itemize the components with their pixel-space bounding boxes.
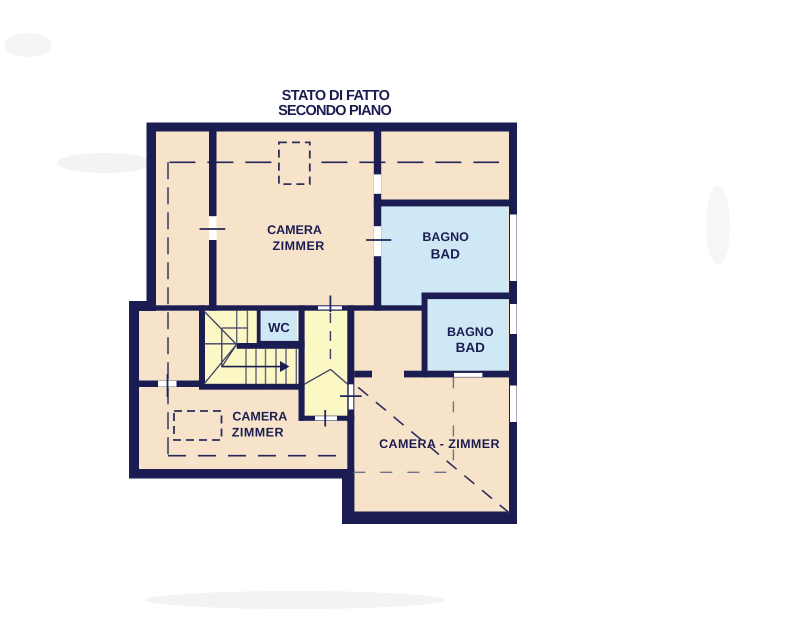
svg-text:BAGNO: BAGNO	[422, 230, 469, 244]
svg-text:CAMERA: CAMERA	[232, 410, 287, 424]
svg-text:BAD: BAD	[456, 340, 485, 355]
svg-text:ZIMMER: ZIMMER	[232, 425, 284, 439]
svg-text:CAMERA: CAMERA	[267, 223, 322, 237]
svg-text:BAD: BAD	[431, 246, 460, 261]
svg-text:STATO DI FATTO: STATO DI FATTO	[282, 88, 390, 104]
svg-text:ZIMMER: ZIMMER	[273, 239, 325, 253]
svg-text:CAMERA - ZIMMER: CAMERA - ZIMMER	[379, 437, 500, 451]
svg-text:WC: WC	[268, 320, 290, 335]
svg-text:BAGNO: BAGNO	[447, 325, 494, 339]
svg-text:SECONDO PIANO: SECONDO PIANO	[278, 103, 391, 119]
